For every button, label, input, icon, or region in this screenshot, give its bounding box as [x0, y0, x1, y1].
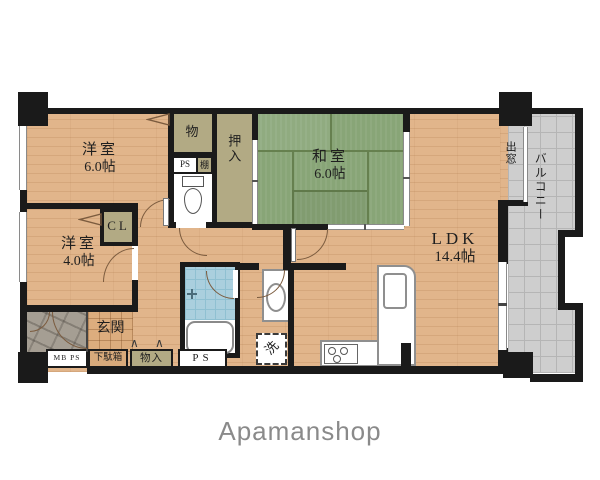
window-mullion — [498, 303, 507, 306]
label-mb-ps: MB PS — [46, 354, 88, 362]
wall-balcony-right-mid — [558, 237, 565, 310]
wall-mono-bottom — [168, 152, 216, 157]
label-cl: CL — [100, 219, 137, 233]
kitchen-sink — [383, 273, 407, 309]
label-balcony: バルコニー — [533, 152, 546, 222]
label-genkan: 玄関 — [88, 321, 133, 336]
wall-washroom-right — [288, 270, 294, 368]
door-leaf-hall-ldk — [291, 228, 296, 262]
room-label-japanese-size: 6.0帖 — [290, 167, 370, 182]
window-marker-cl-icon — [78, 212, 102, 227]
label-monoire: 物入 — [130, 353, 173, 365]
window-bay-glass — [523, 127, 528, 202]
slider-tick — [403, 177, 410, 179]
tatami-line — [330, 112, 332, 150]
tatami-mat-shade — [292, 190, 367, 227]
wall-bottom — [87, 366, 505, 374]
shower-icon — [187, 288, 199, 300]
slider-tick — [364, 224, 366, 230]
label-ps-upper: PS — [172, 160, 198, 170]
slider-washitsu-ldk — [403, 132, 410, 226]
window-western4-left — [19, 212, 27, 282]
wall-top — [25, 108, 505, 114]
wall-balcony-bottom — [530, 374, 583, 382]
pillar-bottom-left — [18, 352, 48, 383]
label-oshiire: 押入 — [226, 134, 240, 164]
window-western6-left — [19, 126, 27, 190]
wall-ldk-right-lower — [498, 348, 508, 370]
toilet-tank — [182, 176, 204, 187]
wall-western4-bottom — [25, 305, 138, 312]
room-label-western4-size: 4.0帖 — [39, 254, 119, 269]
wall-western6-western4-divider — [25, 203, 138, 209]
slider-washitsu-bottom — [328, 224, 404, 230]
label-getabako: 下駄箱 — [88, 353, 128, 363]
floorplan-image: ∧ ∧ 洋室 6.0帖 洋室 4.0帖 和室 6.0帖 LDK 14.4帖 物 … — [0, 0, 600, 480]
pillar-top-left — [18, 92, 48, 126]
room-label-ldk-size: 14.4帖 — [415, 249, 495, 266]
label-shelf: 棚 — [196, 161, 213, 171]
room-label-western4-name: 洋室 — [39, 236, 119, 253]
wall-washroom-top-left — [235, 263, 259, 270]
balcony-notch-cut — [565, 237, 583, 303]
label-ps-lower: PS — [178, 352, 227, 364]
wall-balcony-step1 — [558, 230, 583, 237]
room-label-ldk-name: LDK — [415, 230, 495, 249]
wall-balcony-step2 — [558, 303, 583, 310]
window-marker-western6-icon — [146, 112, 170, 127]
wall-washitsu-right-top — [403, 110, 410, 134]
slider-oshiire — [252, 140, 258, 224]
step-marker-icon: ∧ — [130, 337, 139, 349]
counter-end-wall — [401, 343, 411, 367]
step-marker-icon: ∧ — [155, 337, 164, 349]
apamanshop-logo: Apamanshop — [150, 416, 450, 447]
room-label-western6-name: 洋室 — [60, 142, 140, 159]
room-label-japanese-name: 和室 — [290, 149, 370, 166]
stove — [324, 344, 358, 364]
wall-washroom-top-right — [288, 263, 346, 270]
door-leaf-western6 — [163, 198, 169, 226]
oshiire-floor — [216, 112, 253, 224]
wall-ldk-right-upper — [498, 202, 508, 264]
room-label-western6-size: 6.0帖 — [60, 160, 140, 175]
wall-balcony-right-lower — [575, 310, 583, 382]
slider-tick — [252, 180, 258, 182]
wall-balcony-right-upper — [575, 108, 583, 237]
label-storage-mono: 物 — [172, 125, 212, 139]
label-bay-window: 出窓 — [504, 141, 516, 165]
tatami-mat-shade — [255, 112, 330, 150]
window-ldk-balcony — [498, 262, 507, 350]
